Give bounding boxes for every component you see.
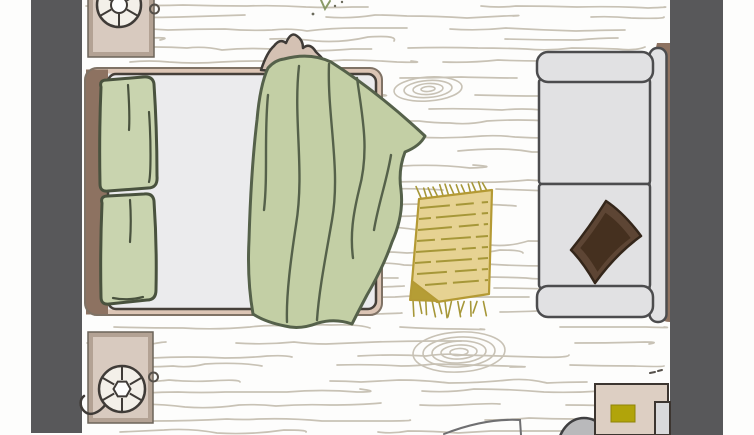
sofa-arm-bottom xyxy=(537,286,653,317)
left-wall-bar xyxy=(31,0,82,433)
nightstand-bottom xyxy=(81,332,158,423)
bedroom-floorplan-illustration xyxy=(0,0,754,435)
sofa-arm-top xyxy=(537,52,653,82)
floorplan-canvas xyxy=(0,0,754,435)
rug-fringe-thread xyxy=(413,300,414,316)
laptop xyxy=(611,405,635,422)
sofa-cushion xyxy=(539,79,650,184)
nightstand-top xyxy=(88,0,159,57)
sofa-backrest xyxy=(650,48,667,322)
desk-side-panel xyxy=(655,402,670,435)
table-lamp-bottom xyxy=(99,366,145,412)
pillow-top xyxy=(100,77,157,191)
sofa xyxy=(537,48,667,322)
right-wall-bar xyxy=(670,0,723,435)
pillow-bottom xyxy=(101,194,157,304)
double-bed xyxy=(85,35,425,328)
rug-fringe-thread xyxy=(426,301,427,315)
wood-grain-line xyxy=(560,327,667,328)
